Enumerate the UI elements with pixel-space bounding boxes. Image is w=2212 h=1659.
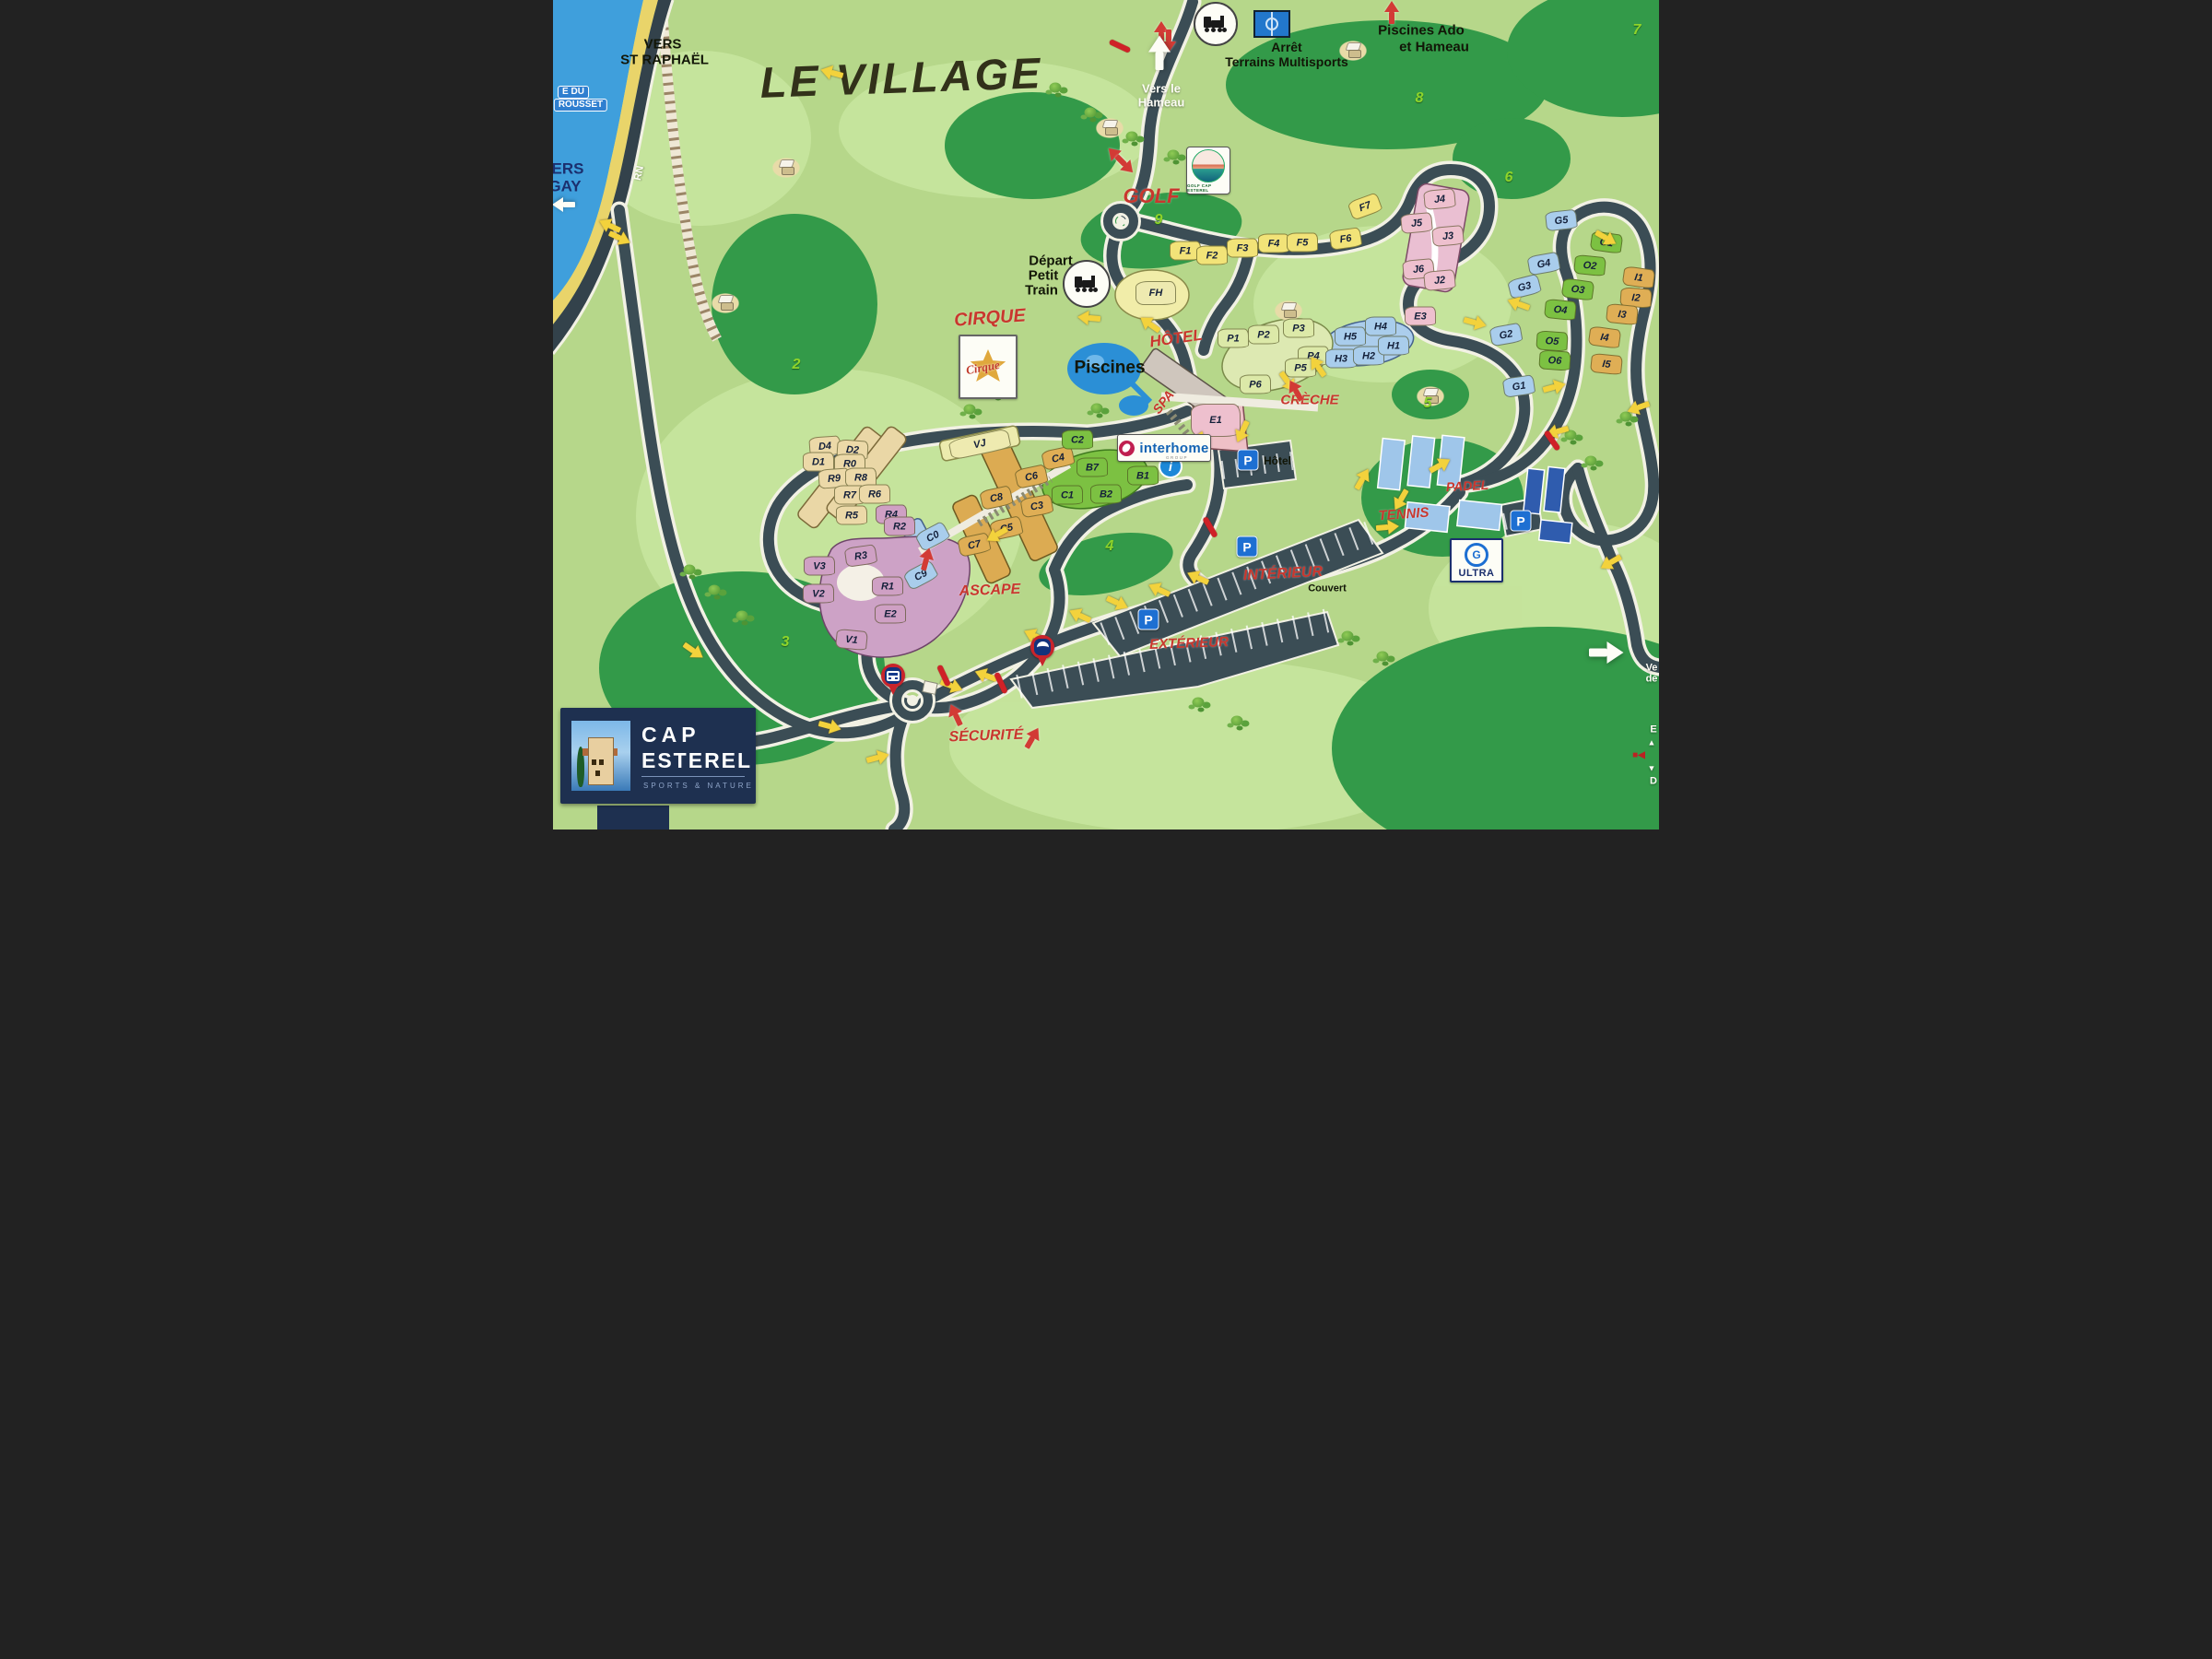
map-label: 6 — [1505, 171, 1513, 185]
map-label: Hôtel — [1264, 455, 1291, 466]
cap-esterel-line1: CAP — [641, 723, 700, 747]
map-label: Piscines — [1074, 359, 1145, 377]
building-label: C2 — [1062, 430, 1093, 450]
building-label: F3 — [1227, 239, 1258, 258]
parking-icon: P — [1138, 609, 1159, 630]
map-label: Vers le — [1142, 83, 1181, 95]
tree-icon — [1091, 404, 1103, 414]
direction-arrow-icon — [1374, 519, 1399, 535]
building-label: O5 — [1535, 330, 1568, 351]
map-label: GOLF — [1123, 186, 1179, 206]
building-label: H1 — [1378, 336, 1409, 356]
direction-arrow-icon — [1148, 36, 1171, 72]
direction-arrow-icon — [1588, 641, 1624, 664]
parking-icon: P — [1238, 450, 1259, 471]
map-label: GAY — [553, 179, 582, 194]
map-label: Couvert — [1308, 584, 1347, 594]
tree-icon — [684, 565, 696, 575]
ultra-logo: G ULTRA — [1450, 538, 1503, 582]
parking-icon: P — [1237, 536, 1258, 558]
tree-icon — [1050, 83, 1062, 93]
train-icon — [1204, 17, 1228, 31]
building-label: V2 — [803, 584, 834, 604]
cap-esterel-line2: ESTEREL — [641, 748, 752, 773]
map-label: E — [1650, 725, 1656, 735]
map-label: PADEL — [1445, 478, 1488, 493]
cap-esterel-picture — [571, 721, 630, 791]
building-label: P1 — [1218, 329, 1249, 348]
golf-cart-icon — [1093, 116, 1126, 140]
cap-esterel-tagline: SPORTS & NATURE — [643, 782, 754, 790]
map-label: Petit — [1029, 269, 1059, 283]
building-label: I1 — [1622, 265, 1656, 289]
interhome-icon — [1119, 441, 1135, 456]
building-label: B2 — [1090, 485, 1122, 504]
tree-icon — [736, 611, 748, 621]
building-label: P6 — [1240, 375, 1271, 394]
map-label: CIRQUE — [953, 306, 1026, 329]
tree-icon — [1168, 150, 1180, 160]
map-label: Arrêt — [1271, 41, 1301, 53]
interhome-logo: interhome GROUP — [1117, 434, 1211, 462]
map-label: EXTÉRIEUR — [1149, 635, 1229, 652]
map-label: Train — [1025, 284, 1058, 298]
map-label: ST RAPHAËL — [620, 53, 709, 67]
building-label: E3 — [1405, 307, 1436, 326]
building-label: H5 — [1335, 327, 1366, 347]
building-label: I3 — [1606, 303, 1639, 325]
building-label: I4 — [1588, 325, 1622, 349]
interhome-sub: GROUP — [1166, 455, 1188, 460]
map-label: Hameau — [1138, 97, 1185, 109]
tree-icon — [964, 405, 976, 415]
map-label: VERS — [644, 38, 682, 52]
building-label: O4 — [1544, 299, 1577, 321]
security-pin — [1030, 635, 1054, 668]
building-label: V1 — [835, 629, 868, 651]
building-label: R6 — [859, 485, 890, 504]
tree-icon — [1377, 652, 1389, 662]
building-label: P3 — [1283, 319, 1314, 338]
golf-club-logo: GOLF CAP ESTEREL — [1186, 147, 1230, 194]
cirque-logo: Cirque — [959, 335, 1018, 399]
building-label: C1 — [1052, 486, 1083, 505]
golf-cart-icon — [709, 291, 742, 315]
building-label: G5 — [1545, 209, 1578, 231]
map-label: Piscines Ado — [1378, 24, 1465, 38]
tree-icon — [1342, 631, 1354, 641]
tree-icon — [1193, 698, 1205, 708]
interhome-name: interhome — [1139, 441, 1208, 456]
building-label: F4 — [1258, 234, 1289, 253]
map-label: 2 — [793, 358, 801, 372]
map-label: SÉCURITÉ — [948, 728, 1023, 746]
building-label: R5 — [836, 506, 867, 525]
building-label: H3 — [1325, 349, 1357, 369]
map-label: 5 — [1424, 396, 1432, 411]
map-label: Terrains Multisports — [1225, 55, 1348, 68]
bus-icon — [885, 667, 901, 684]
train-stop-depart-icon — [1063, 260, 1111, 308]
map-label: ERS — [553, 161, 583, 177]
map-label: 7 — [1633, 23, 1641, 38]
building-label: O2 — [1573, 254, 1606, 276]
building-label: F2 — [1196, 246, 1228, 265]
golf-logo-icon — [1192, 149, 1225, 182]
ultra-name: ULTRA — [1459, 568, 1495, 579]
building-label: J3 — [1431, 225, 1465, 247]
building-label: B7 — [1077, 458, 1108, 477]
ultra-icon: G — [1465, 543, 1488, 567]
cap-esterel-logo: CAP ESTEREL SPORTS & NATURE — [560, 708, 756, 804]
building-label: J5 — [1400, 212, 1433, 234]
map-label: ASCAPE — [959, 582, 1020, 599]
map-label: E DU — [558, 86, 589, 99]
golf-logo-text: GOLF CAP ESTEREL — [1187, 183, 1230, 193]
map-label: de — [1646, 675, 1658, 685]
map-label: D — [1650, 777, 1657, 787]
map-label: ■◀ — [1632, 751, 1645, 760]
building-label: R2 — [884, 517, 915, 536]
map-label: 8 — [1416, 91, 1424, 106]
direction-arrow-icon — [1077, 310, 1101, 326]
building-label: H4 — [1365, 317, 1396, 336]
tree-icon — [1231, 716, 1243, 726]
map-label: 9 — [1155, 213, 1163, 228]
direction-arrow-icon — [1384, 1, 1399, 25]
building-label: F5 — [1287, 233, 1318, 253]
golf-cart-icon — [770, 156, 803, 180]
building-label: P2 — [1248, 325, 1279, 345]
map-label: et Hameau — [1399, 41, 1469, 54]
resort-map: D4D2D1R0R9R8R7R6R5R4R2R3V3V2V1R1E2C0C9C7… — [553, 0, 1659, 829]
train-icon — [1075, 276, 1099, 291]
map-label: Départ — [1029, 254, 1073, 268]
map-label: ▲ — [1648, 739, 1656, 747]
map-label: Ve — [1646, 664, 1658, 674]
security-cap-icon — [1034, 639, 1051, 655]
tree-icon — [1585, 456, 1597, 466]
parking-icon: P — [1511, 511, 1532, 532]
map-label: ▼ — [1648, 765, 1656, 773]
building-label: R1 — [872, 577, 903, 596]
tree-icon — [709, 585, 721, 595]
map-label: 4 — [1106, 539, 1114, 554]
map-label: ROUSSET — [554, 99, 607, 112]
direction-arrow-icon — [553, 197, 576, 212]
building-label: FH — [1135, 281, 1176, 305]
building-label: I5 — [1590, 353, 1623, 375]
bus-stop-pin — [881, 664, 905, 697]
building-label: J2 — [1423, 269, 1456, 291]
tree-icon — [1126, 132, 1138, 142]
map-label: 3 — [782, 635, 790, 650]
building-label: O6 — [1538, 349, 1571, 371]
building-label: E2 — [875, 605, 906, 624]
map-label: LE VILLAGE — [759, 51, 1043, 104]
multisport-court-icon — [1253, 10, 1290, 38]
building-label: V3 — [804, 557, 835, 576]
building-label: O3 — [1561, 277, 1595, 301]
train-stop-hameau-icon — [1194, 2, 1238, 46]
building-label: J4 — [1423, 188, 1456, 210]
building-label: B1 — [1127, 466, 1159, 486]
